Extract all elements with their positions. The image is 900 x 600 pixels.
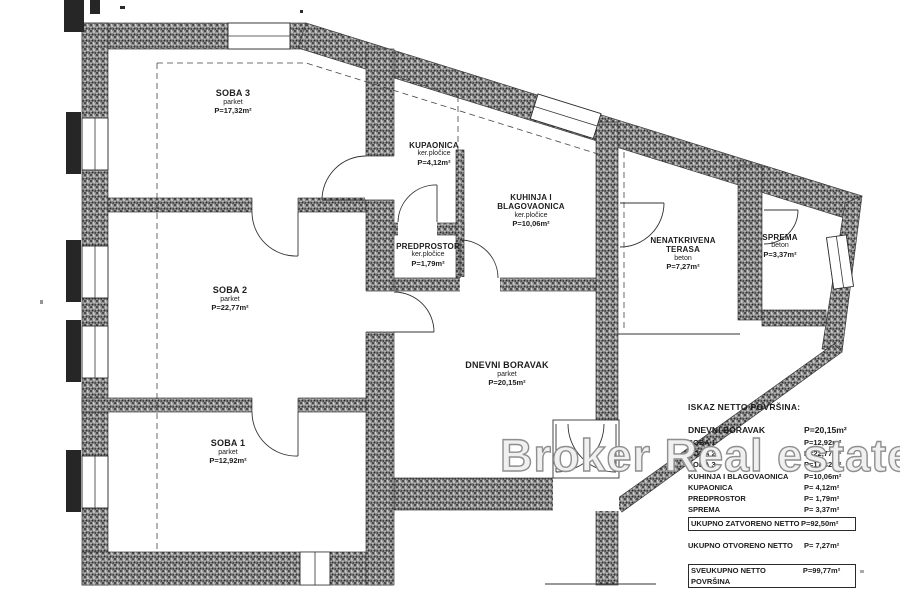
room-area: P=1,79m² [396, 260, 460, 269]
watermark-text: Broker Real estate [500, 430, 900, 482]
room-label-predprostor: PREDPROSTOR ker.pločice P=1,79m² [396, 242, 460, 269]
room-name: KUPAONICA [409, 141, 459, 150]
legend-value: P=92,50m² [801, 518, 853, 529]
room-area: P=7,27m² [637, 263, 729, 272]
speck [300, 10, 303, 13]
legend-row: PREDPROSTORP= 1,79m² [688, 493, 856, 504]
room-label-sprema: SPREMA beton P=3,37m² [762, 233, 797, 260]
legend-label: UKUPNO OTVORENO NETTO [688, 540, 793, 551]
room-area: P=17,32m² [214, 107, 251, 116]
legend-label: KUPAONICA [688, 482, 733, 493]
speck [120, 6, 125, 9]
room-label-soba2: SOBA 2 parket P=22,77m² [211, 285, 248, 313]
window-top [228, 23, 290, 49]
legend-row: KUPAONICAP= 4,12m² [688, 482, 856, 493]
speck [40, 300, 43, 304]
legend-value: P= 4,12m² [804, 482, 856, 493]
room-area: P=20,15m² [465, 379, 548, 388]
room-name: NENATKRIVENA TERASA [637, 236, 729, 255]
room-name: SOBA 3 [214, 88, 251, 99]
window-left-1 [82, 118, 108, 170]
room-name: SOBA 2 [211, 285, 248, 296]
window-left-3 [82, 326, 108, 378]
legend-label: UKUPNO ZATVORENO NETTO [691, 518, 799, 529]
room-label-soba1: SOBA 1 parket P=12,92m² [209, 438, 246, 466]
legend-label: SPREMA [688, 504, 720, 515]
legend-title: ISKAZ NETTO POVRŠINA: [688, 402, 856, 412]
room-label-dnevni-boravak: DNEVNI BORAVAK parket P=20,15m² [465, 360, 548, 388]
room-area: P=12,92m² [209, 457, 246, 466]
room-label-soba3: SOBA 3 parket P=17,32m² [214, 88, 251, 116]
legend-total-open: UKUPNO OTVORENO NETTOP= 7,27m² [688, 540, 856, 551]
legend-row: SPREMAP= 3,37m² [688, 504, 856, 515]
window-left-4 [82, 456, 108, 508]
legend-value: P= 3,37m² [804, 504, 856, 515]
room-name: PREDPROSTOR [396, 242, 460, 251]
room-name: SOBA 1 [209, 438, 246, 449]
room-label-terasa: NENATKRIVENA TERASA beton P=7,27m² [637, 236, 729, 272]
window-bottom [300, 552, 330, 585]
room-name: SPREMA [762, 233, 797, 242]
room-area: P=4,12m² [409, 159, 459, 168]
legend-label: SVEUKUPNO NETTO POVRŠINA [691, 565, 803, 587]
legend-value: P= 1,79m² [804, 493, 856, 504]
legend-total-closed: UKUPNO ZATVORENO NETTOP=92,50m² [688, 517, 856, 530]
room-name: KUHINJA I BLAGOVAONICA [488, 193, 574, 212]
legend-grand-total: SVEUKUPNO NETTO POVRŠINAP=99,77m² [688, 564, 856, 588]
legend-value: P=99,77m² [803, 565, 853, 587]
legend-label: PREDPROSTOR [688, 493, 746, 504]
room-area: P=22,77m² [211, 304, 248, 313]
room-area: P=3,37m² [762, 251, 797, 260]
window-diagonal [530, 94, 601, 138]
window-left-2 [82, 246, 108, 298]
legend-value: P= 7,27m² [804, 540, 856, 551]
floor-plan-page: SOBA 3 parket P=17,32m² KUPAONICA ker.pl… [0, 0, 900, 600]
room-name: DNEVNI BORAVAK [465, 360, 548, 371]
speck [860, 570, 864, 573]
room-label-kupaonica: KUPAONICA ker.pločice P=4,12m² [409, 141, 459, 168]
room-label-kuhinja: KUHINJA I BLAGOVAONICA ker.pločice P=10,… [488, 193, 574, 229]
room-area: P=10,06m² [488, 220, 574, 229]
